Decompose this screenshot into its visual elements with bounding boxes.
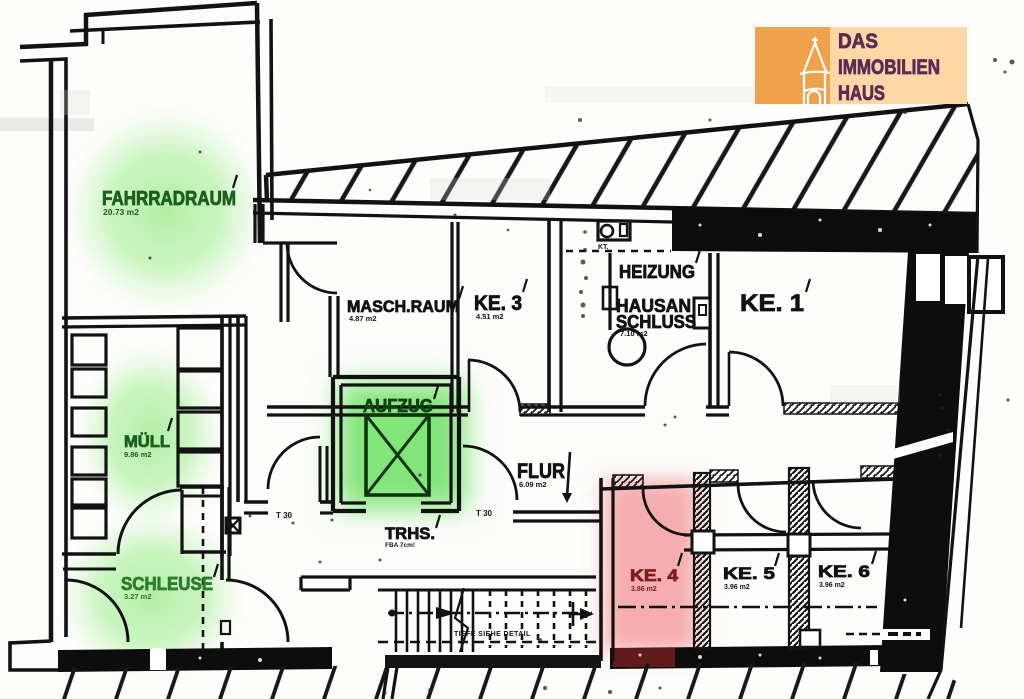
svg-text:KE. 1: KE. 1: [740, 290, 804, 317]
svg-text:3.27 m2: 3.27 m2: [124, 592, 152, 601]
svg-text:3.96 m2: 3.96 m2: [724, 584, 750, 591]
svg-text:SCHLEUSE: SCHLEUSE: [121, 574, 213, 594]
svg-text:HEIZUNG: HEIZUNG: [619, 262, 695, 282]
svg-text:KE. 5: KE. 5: [723, 564, 775, 583]
svg-text:KT.: KT.: [598, 244, 609, 251]
svg-text:6.09 m2: 6.09 m2: [519, 480, 547, 489]
svg-text:4.51 m2: 4.51 m2: [476, 312, 504, 321]
svg-text:3.96 m2: 3.96 m2: [819, 582, 845, 589]
svg-text:20.73 m2: 20.73 m2: [103, 207, 139, 217]
svg-text:IMMOBILIEN: IMMOBILIEN: [838, 55, 940, 79]
svg-text:TIEFE SIEHE DETAIL: TIEFE SIEHE DETAIL: [454, 631, 531, 638]
svg-text:DAS: DAS: [838, 29, 878, 53]
svg-text:TRHS.: TRHS.: [385, 524, 435, 543]
svg-text:4.87 m2: 4.87 m2: [349, 314, 377, 323]
svg-text:FBA 7cm!: FBA 7cm!: [385, 542, 415, 549]
svg-text:MÜLL: MÜLL: [124, 432, 170, 451]
svg-text:3.86 m2: 3.86 m2: [631, 586, 657, 593]
svg-text:AUFZUG: AUFZUG: [363, 396, 433, 416]
svg-text:KE. 6: KE. 6: [818, 562, 870, 581]
svg-text:7.10 m2: 7.10 m2: [620, 329, 648, 338]
svg-text:T 30: T 30: [476, 509, 493, 518]
svg-text:KE. 4: KE. 4: [630, 566, 679, 585]
svg-text:T 30: T 30: [276, 511, 293, 520]
svg-text:9.86 m2: 9.86 m2: [124, 450, 152, 459]
svg-text:HAUS: HAUS: [838, 81, 885, 105]
